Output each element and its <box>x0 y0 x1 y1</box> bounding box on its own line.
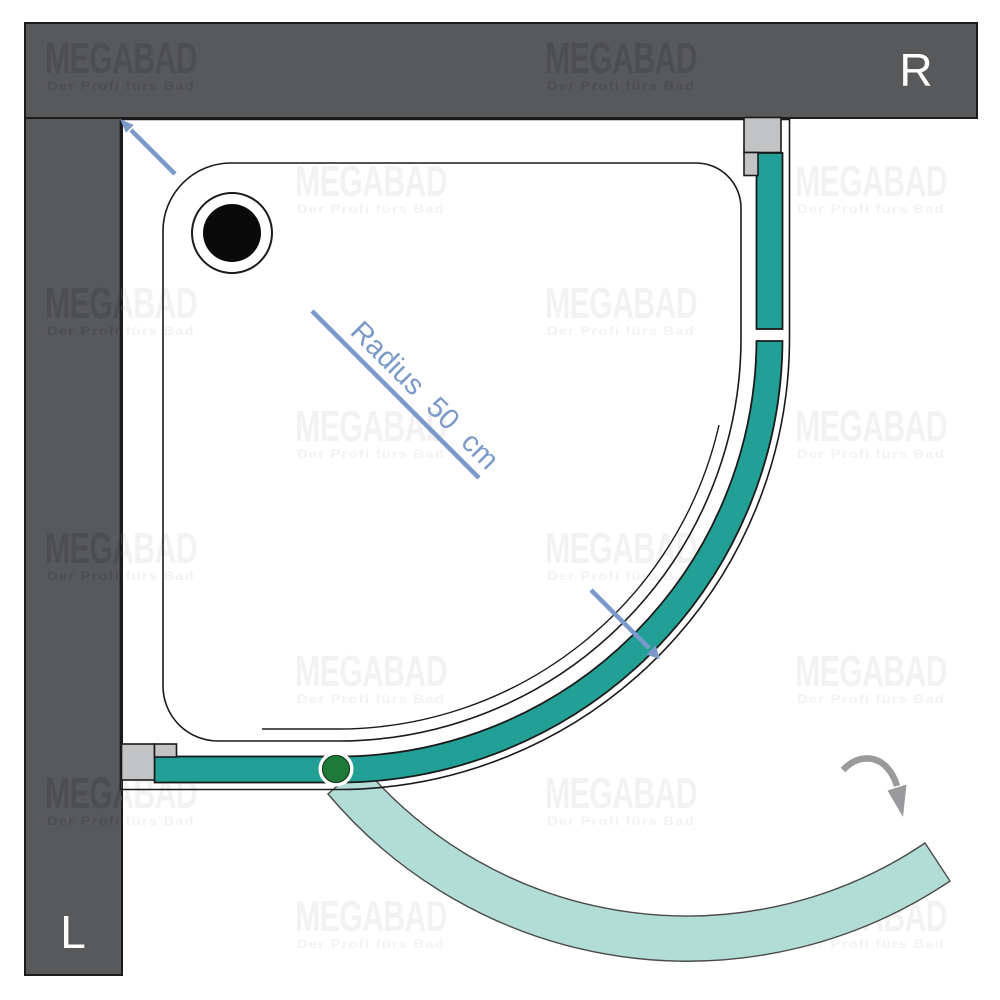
watermark-grid <box>45 157 947 951</box>
fixed-glass-panel-right <box>757 153 783 329</box>
radius-dimension-arrow-line <box>591 590 649 648</box>
corner-arrow-icon <box>120 119 175 174</box>
wall-label-right: R <box>899 44 932 96</box>
drain-hole <box>203 204 261 262</box>
corner-arrow-line <box>131 130 175 174</box>
swing-arrowhead-icon <box>888 785 907 818</box>
shower-enclosure-diagram: MEGABAD Der Profi fürs Bad MEGABAD Der P… <box>0 0 1000 1000</box>
wall-profile-bottom-tab <box>155 744 177 757</box>
radius-dimension: Radius 50 cm <box>312 311 660 659</box>
wall-profile-top-bracket <box>744 118 781 153</box>
diagram-canvas: MEGABAD Der Profi fürs Bad MEGABAD Der P… <box>0 0 1000 1000</box>
swing-direction-arrow-icon <box>843 758 907 817</box>
fixed-glass-panel-bottom <box>155 757 339 783</box>
door-pivot <box>323 756 350 783</box>
wall-profile-top-tab <box>744 153 758 176</box>
wall-profile-bottom-bracket <box>122 744 155 780</box>
swing-arrow-curve <box>843 758 897 786</box>
wall-label-left: L <box>60 906 86 958</box>
